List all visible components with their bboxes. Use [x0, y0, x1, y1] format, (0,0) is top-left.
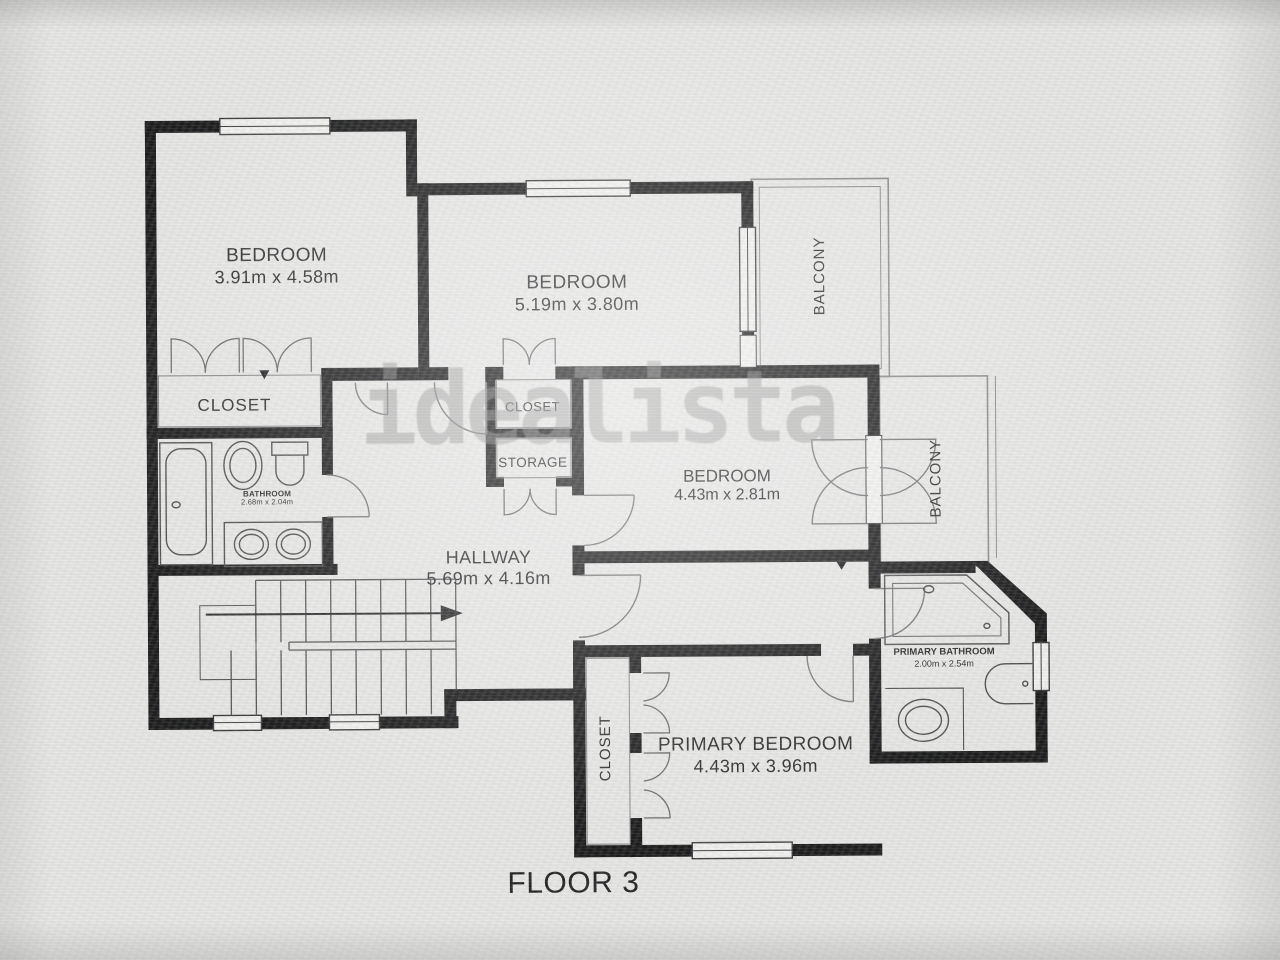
- toilet-icon: [224, 441, 262, 489]
- primary-bathroom-label: PRIMARY BATHROOM 2.00m x 2.54m: [893, 647, 994, 669]
- primary-bathroom-dims: 2.00m x 2.54m: [894, 658, 995, 669]
- door-arc-bedroom1: [355, 383, 387, 415]
- stairs: [200, 579, 464, 716]
- stairs-direction-arrow: [206, 605, 463, 623]
- shower-icon: [885, 575, 1009, 645]
- balcony-right-label: BALCONY: [927, 439, 945, 518]
- sink-primary-icon: [985, 664, 1033, 704]
- hallway-label: HALLWAY 5.69m x 4.16m: [426, 547, 551, 589]
- floor-plan-drawing: [0, 0, 1280, 960]
- bedroom1-name: BEDROOM: [214, 245, 338, 268]
- door-arc-bathroom: [327, 475, 369, 517]
- bedroom2-dims: 5.19m x 3.80m: [515, 294, 639, 315]
- storage-name: STORAGE: [498, 455, 567, 470]
- french-door-balcony: [812, 435, 937, 524]
- balcony-right-name: BALCONY: [927, 439, 944, 518]
- bathroom-dims: 2.68m x 2.04m: [241, 498, 293, 507]
- closet-hall-name: CLOSET: [505, 399, 560, 414]
- bifold-closet-main: [171, 338, 311, 373]
- door-arc-corridor: [579, 575, 641, 637]
- hallway-dims: 5.69m x 4.16m: [426, 568, 550, 589]
- bedroom1-label: BEDROOM 3.91m x 4.58m: [214, 245, 339, 288]
- closet-primary-name: CLOSET: [597, 715, 614, 781]
- bedroom3-dims: 4.43m x 2.81m: [674, 486, 780, 505]
- bedroom2-label: BEDROOM 5.19m x 3.80m: [515, 272, 640, 315]
- storage-label: STORAGE: [498, 455, 567, 471]
- floor-title: FLOOR 3: [507, 866, 639, 901]
- double-sink-icon: [224, 522, 322, 567]
- bifold-closet-hall-top: [503, 339, 555, 365]
- window-bedroom2-balcony: [739, 227, 756, 367]
- door-arc-bedroom3: [584, 495, 634, 545]
- primary-bedroom-label: PRIMARY BEDROOM 4.43m x 3.96m: [658, 733, 854, 777]
- window-bedroom1: [220, 118, 330, 135]
- toilet-primary-icon: [885, 688, 963, 750]
- door-arc-bedroom2: [434, 382, 486, 434]
- bathtub-icon: [160, 443, 213, 565]
- hallway-name: HALLWAY: [426, 547, 550, 568]
- balcony-top-label: BALCONY: [811, 236, 829, 315]
- closet-primary-label: CLOSET: [597, 715, 615, 781]
- door-arc-primary-bathroom: [875, 588, 925, 638]
- bifold-storage-bottom: [504, 489, 556, 515]
- primary-bathroom-name: PRIMARY BATHROOM: [893, 647, 994, 659]
- window-stairs-left: [213, 715, 261, 730]
- door-arc-primary-bedroom: [807, 656, 853, 702]
- window-stairs-right: [329, 715, 379, 730]
- bedroom1-dims: 3.91m x 4.58m: [215, 266, 339, 287]
- balcony-top-name: BALCONY: [811, 236, 828, 315]
- bedroom2-name: BEDROOM: [515, 272, 639, 295]
- bedroom3-label: BEDROOM 4.43m x 2.81m: [674, 466, 780, 505]
- closet-hall-label: CLOSET: [505, 400, 560, 415]
- interior-outlines: [158, 373, 630, 847]
- closet-main-name: CLOSET: [197, 395, 271, 414]
- bathroom-label: BATHROOM 2.68m x 2.04m: [241, 489, 293, 507]
- bedroom3-name: BEDROOM: [674, 466, 780, 486]
- bidet-icon: [272, 442, 308, 485]
- closet-main-label: CLOSET: [197, 395, 271, 415]
- primary-bedroom-dims: 4.43m x 3.96m: [658, 755, 853, 777]
- primary-bedroom-name: PRIMARY BEDROOM: [658, 733, 853, 756]
- window-bedroom2: [526, 180, 630, 197]
- window-primary-bedroom: [692, 842, 792, 859]
- floor-plan: BEDROOM 3.91m x 4.58m BEDROOM 5.19m x 3.…: [0, 0, 1280, 960]
- balcony-right-outline: [879, 376, 1042, 615]
- window-primary-bathroom: [1033, 643, 1049, 691]
